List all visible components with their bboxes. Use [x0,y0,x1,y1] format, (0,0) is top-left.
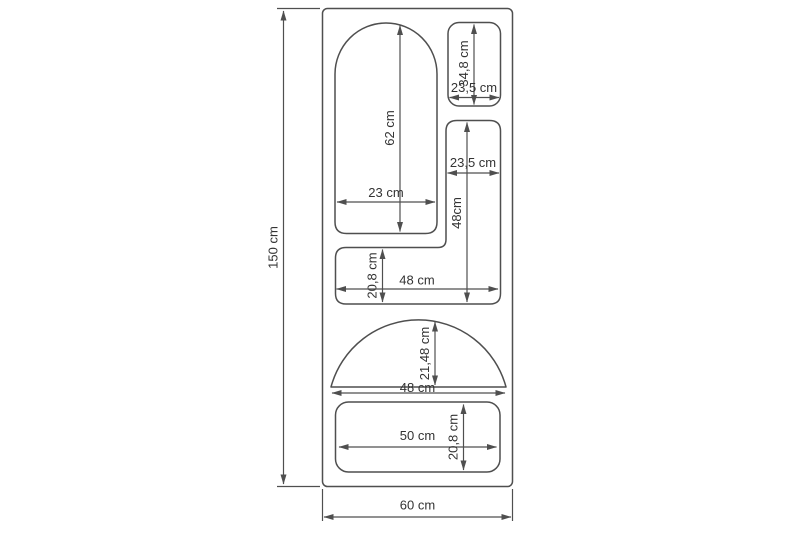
dim-base-width: 50 cm [339,428,497,447]
dim-label-column-width: 23,5 cm [450,155,496,170]
dim-shelf-width: 48 cm [337,273,499,290]
dim-overall-height: 150 cm [266,9,321,487]
dim-shelf-height: 20,8 cm [365,250,383,303]
dim-label-arch-width: 23 cm [368,185,403,200]
technical-drawing: 150 cm 60 cm 62 cm 23 cm 34,8 cm 23,5 cm [0,0,800,533]
dim-label-arch-height: 62 cm [382,110,397,145]
dim-label-dome-width: 48 cm [400,380,435,395]
dim-label-dome-height: 21,48 cm [417,327,432,380]
dim-label-column-height: 48cm [449,197,464,229]
dim-base-height: 20,8 cm [446,405,464,471]
dim-label-overall-height: 150 cm [266,226,281,269]
dim-label-shelf-height: 20,8 cm [365,252,380,298]
drawing-canvas: 150 cm 60 cm 62 cm 23 cm 34,8 cm 23,5 cm [0,0,800,533]
dim-label-base-width: 50 cm [400,428,435,443]
dim-arch-width: 23 cm [337,185,435,202]
dim-niche-width: 23,5 cm [450,80,500,98]
dim-label-shelf-width: 48 cm [399,273,434,288]
dim-label-overall-width: 60 cm [400,498,435,513]
dim-overall-width: 60 cm [323,489,513,521]
dim-arch-height: 62 cm [382,26,400,232]
dim-label-niche-width: 23,5 cm [451,80,497,95]
dim-dome-height: 21,48 cm [417,322,435,385]
dim-label-base-height: 20,8 cm [446,414,461,460]
dim-column-width: 23,5 cm [448,155,500,173]
dim-column-height: 48cm [449,123,467,303]
